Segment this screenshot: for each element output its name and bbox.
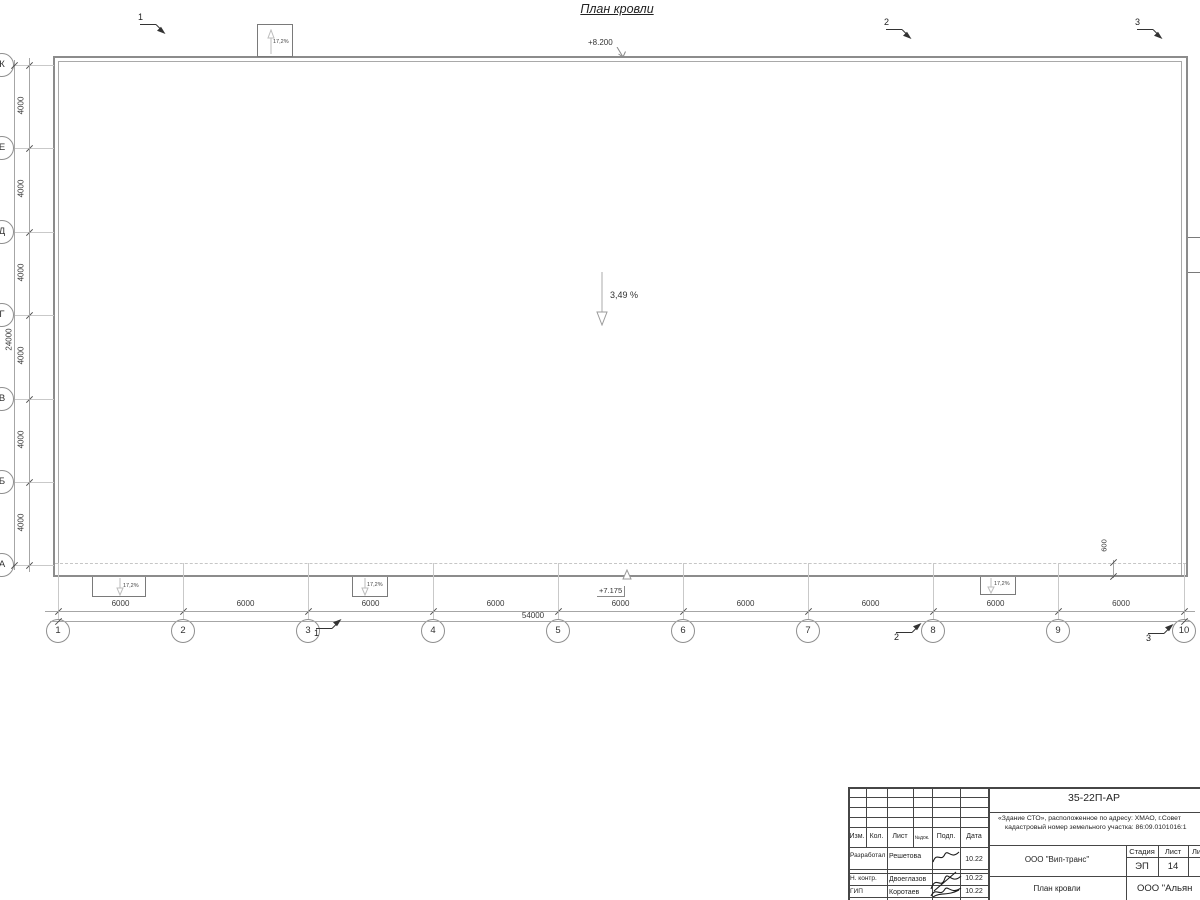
axis-extension-line [14, 148, 54, 149]
dim-label-4000: 4000 [17, 503, 26, 541]
dim-label-24000: 24000 [5, 320, 14, 360]
firm-name: ООО "Альян [1137, 883, 1192, 894]
axis-bubble-number: 7 [796, 619, 820, 643]
dim-label-6000: 6000 [596, 599, 646, 608]
section-mark-2-top: 2 [882, 17, 912, 45]
col-header-data: Дата [960, 833, 988, 840]
section-mark-3-bottom: 3 [1144, 619, 1174, 647]
dim-label-6000: 6000 [96, 599, 146, 608]
tb-grid-line [988, 876, 1200, 877]
col-header-izm: Изм. [847, 833, 867, 840]
roof-slope-label: 3,49 % [610, 290, 638, 300]
drawing-title: План кровли [988, 884, 1126, 893]
section-arrow-icon [140, 23, 168, 37]
elevation-arrow-down-icon [614, 47, 628, 63]
canopy-bottom-1: 17,2% [92, 577, 146, 597]
project-description-line2: кадастровый номер земельного участка: 86… [1005, 824, 1187, 831]
project-description-line1: «Здание СТО», расположенное по адресу: Х… [998, 815, 1181, 822]
section-number: 2 [894, 632, 899, 642]
axis-bubble-letter: Б [0, 470, 14, 494]
signature [928, 884, 964, 900]
axis-bubble-number: 5 [546, 619, 570, 643]
row-role: ГИП [850, 888, 863, 895]
tb-grid-line [848, 897, 988, 898]
dim-label-6000: 6000 [1096, 599, 1146, 608]
overhang-dim-label: 600 [1100, 531, 1109, 561]
axis-extension-line [14, 315, 54, 316]
title-block-border [848, 787, 1200, 789]
axis-bubble-letter: Д [0, 220, 14, 244]
axis-bubble-number: 8 [921, 619, 945, 643]
canopy-slope-label: 17,2% [994, 581, 1010, 587]
canopy-slope-label: 17,2% [273, 39, 289, 45]
section-number: 1 [314, 628, 319, 638]
section-mark-1-bottom: 1 [312, 614, 342, 642]
dim-label-6000: 6000 [971, 599, 1021, 608]
dim-line-vertical [29, 58, 30, 572]
tb-grid-line [848, 873, 988, 874]
section-mark-1-top: 1 [136, 12, 166, 40]
doc-number: 35-22П-АР [988, 792, 1200, 804]
col-header-list: Лист [887, 833, 913, 840]
section-number: 2 [884, 17, 889, 27]
title-block-border [848, 787, 850, 900]
tb-grid-line [848, 885, 988, 886]
tb-grid-line [848, 807, 988, 808]
axis-bubble-letter: К [0, 53, 14, 77]
row-name: Коротаев [889, 889, 919, 896]
axis-bubble-number: 6 [671, 619, 695, 643]
section-arrow-icon [886, 28, 914, 42]
dim-label-54000: 54000 [508, 611, 558, 620]
col-header-kol: Кол. [866, 833, 887, 840]
axis-extension-line [14, 482, 54, 483]
dim-label-4000: 4000 [17, 337, 26, 375]
canopy-slope-label: 17,2% [123, 583, 139, 589]
axis-extension-line [14, 399, 54, 400]
canopy-top: 17,2% [257, 24, 293, 57]
elevation-top-value: +8.200 [588, 38, 613, 47]
axis-bubble-letter: В [0, 387, 14, 411]
tb-grid-line [848, 869, 988, 870]
tb-grid-line [848, 797, 988, 798]
axis-bubble-letter: Е [0, 136, 14, 160]
tb-grid-line [848, 827, 988, 828]
tb-grid-line [848, 817, 988, 818]
dim-line-horizontal [50, 621, 1190, 622]
dim-label-4000: 4000 [17, 170, 26, 208]
dim-line-vertical [14, 60, 15, 570]
tb-grid-line [887, 789, 888, 900]
dim-label-6000: 6000 [721, 599, 771, 608]
stage-label: Стадия [1126, 847, 1158, 856]
row-date: 10.22 [961, 888, 987, 895]
col-header-podp: Подп. [932, 833, 960, 840]
sheets-label: Листов [1192, 847, 1200, 856]
dim-label-6000: 6000 [221, 599, 271, 608]
sheet-label: Лист [1158, 847, 1188, 856]
row-name: Решетова [889, 853, 921, 860]
sheet-value: 14 [1158, 861, 1188, 872]
row-role: Н. контр. [850, 875, 877, 882]
tb-grid-line [848, 847, 988, 848]
section-arrow-icon [1148, 621, 1176, 635]
tb-grid-line [988, 812, 1200, 813]
col-header-ndok: №док. [912, 835, 932, 841]
axis-extension-line [14, 232, 54, 233]
canopy-slope-label: 17,2% [367, 582, 383, 588]
section-arrow-icon [896, 620, 924, 634]
elevation-mark-top: +8.200 [588, 38, 613, 47]
elevation-bottom-value: +7.175 [597, 586, 625, 597]
elevation-mark-bottom: +7.175 [597, 580, 625, 598]
section-arrow-icon [1137, 28, 1165, 42]
row-name: Двоеглазов [889, 876, 926, 883]
section-number: 3 [1135, 17, 1140, 27]
elevation-arrow-up-icon [621, 569, 633, 581]
tb-grid-line [988, 845, 1200, 846]
row-date: 10.22 [961, 875, 987, 882]
row-role: Разработал [850, 852, 885, 859]
signature [930, 848, 962, 866]
section-mark-2-bottom: 2 [892, 618, 922, 646]
dim-label-6000: 6000 [346, 599, 396, 608]
axes-dimensions-layer: КЕДГВБА400040004000400040004000240001234… [0, 0, 1200, 900]
canopy-bottom-2: 17,2% [352, 577, 388, 597]
section-number: 3 [1146, 633, 1151, 643]
dim-label-4000: 4000 [17, 253, 26, 291]
company-name: ООО "Вип-транс" [988, 855, 1126, 864]
section-number: 1 [138, 12, 143, 22]
dim-label-6000: 6000 [846, 599, 896, 608]
roof-slope-arrow-icon [594, 272, 610, 326]
section-arrow-icon [316, 616, 344, 630]
stage-value: ЭП [1126, 861, 1158, 872]
section-mark-3-top: 3 [1133, 17, 1163, 45]
axis-bubble-number: 4 [421, 619, 445, 643]
tb-grid-line [1126, 857, 1200, 858]
axis-bubble-number: 2 [171, 619, 195, 643]
row-date: 10.22 [961, 856, 987, 863]
canopy-right-cut [1188, 237, 1200, 273]
dim-label-4000: 4000 [17, 86, 26, 124]
axis-bubble-letter: А [0, 553, 14, 577]
tb-grid-line [1188, 845, 1189, 876]
axis-bubble-number: 9 [1046, 619, 1070, 643]
drawing-sheet: План кровли КЕДГВБА400040004000400040004… [0, 0, 1200, 900]
dim-label-4000: 4000 [17, 420, 26, 458]
dim-line-horizontal [45, 611, 1195, 612]
axis-extension-line [14, 565, 54, 566]
axis-extension-line [14, 65, 54, 66]
canopy-bottom-3: 17,2% [980, 577, 1016, 595]
dim-label-6000: 6000 [471, 599, 521, 608]
